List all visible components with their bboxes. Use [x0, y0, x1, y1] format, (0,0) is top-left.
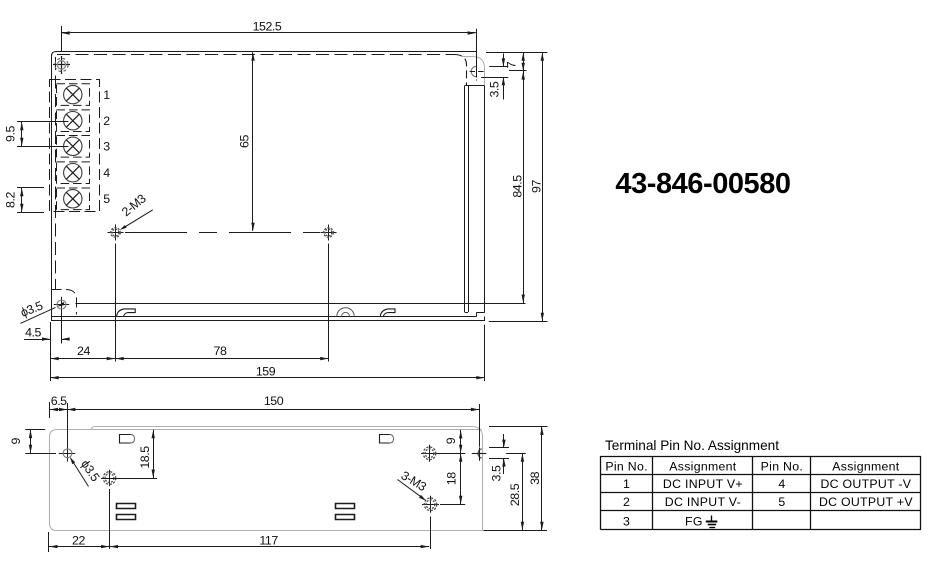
svg-text:24: 24: [77, 344, 90, 358]
svg-text:117: 117: [259, 534, 278, 548]
svg-text:3: 3: [103, 140, 110, 154]
svg-text:38: 38: [528, 471, 542, 484]
svg-text:84.5: 84.5: [510, 175, 524, 198]
svg-text:2: 2: [623, 495, 630, 509]
svg-text:Assignment: Assignment: [669, 459, 737, 473]
svg-text:159: 159: [256, 364, 276, 378]
svg-text:152.5: 152.5: [253, 19, 282, 33]
svg-text:DC INPUT V-: DC INPUT V-: [665, 495, 741, 509]
svg-text:8.2: 8.2: [4, 192, 18, 208]
svg-text:1: 1: [103, 88, 110, 102]
svg-text:3.5: 3.5: [489, 465, 503, 481]
svg-text:Terminal Pin No. Assignment: Terminal Pin No. Assignment: [605, 437, 779, 453]
svg-text:5: 5: [103, 192, 110, 206]
svg-text:9: 9: [9, 438, 23, 445]
svg-text:5: 5: [778, 495, 785, 509]
svg-text:150: 150: [264, 394, 284, 408]
svg-text:7: 7: [505, 61, 519, 68]
svg-text:78: 78: [214, 344, 227, 358]
svg-text:28.5: 28.5: [508, 483, 522, 506]
svg-text:1: 1: [623, 477, 630, 491]
svg-text:3: 3: [623, 514, 630, 528]
svg-text:Pin No.: Pin No.: [761, 459, 803, 473]
svg-text:4: 4: [778, 477, 785, 491]
svg-text:97: 97: [529, 180, 543, 193]
svg-text:DC INPUT V+: DC INPUT V+: [663, 477, 743, 491]
svg-text:DC OUTPUT +V: DC OUTPUT +V: [819, 495, 913, 509]
svg-text:Pin No.: Pin No.: [605, 459, 647, 473]
svg-text:9.5: 9.5: [4, 126, 18, 142]
svg-text:65: 65: [237, 135, 251, 148]
svg-text:Assignment: Assignment: [832, 459, 900, 473]
svg-text:18.5: 18.5: [138, 446, 152, 469]
svg-text:22: 22: [72, 534, 85, 548]
svg-text:2: 2: [103, 114, 110, 128]
svg-text:DC OUTPUT -V: DC OUTPUT -V: [820, 477, 911, 491]
svg-text:6.5: 6.5: [51, 394, 67, 408]
svg-text:18: 18: [445, 472, 459, 485]
svg-text:43-846-00580: 43-846-00580: [615, 168, 790, 200]
svg-text:FG: FG: [685, 514, 703, 528]
svg-text:4.5: 4.5: [25, 326, 41, 340]
svg-text:9: 9: [444, 437, 458, 444]
svg-text:3.5: 3.5: [488, 81, 502, 97]
svg-text:4: 4: [103, 166, 110, 180]
